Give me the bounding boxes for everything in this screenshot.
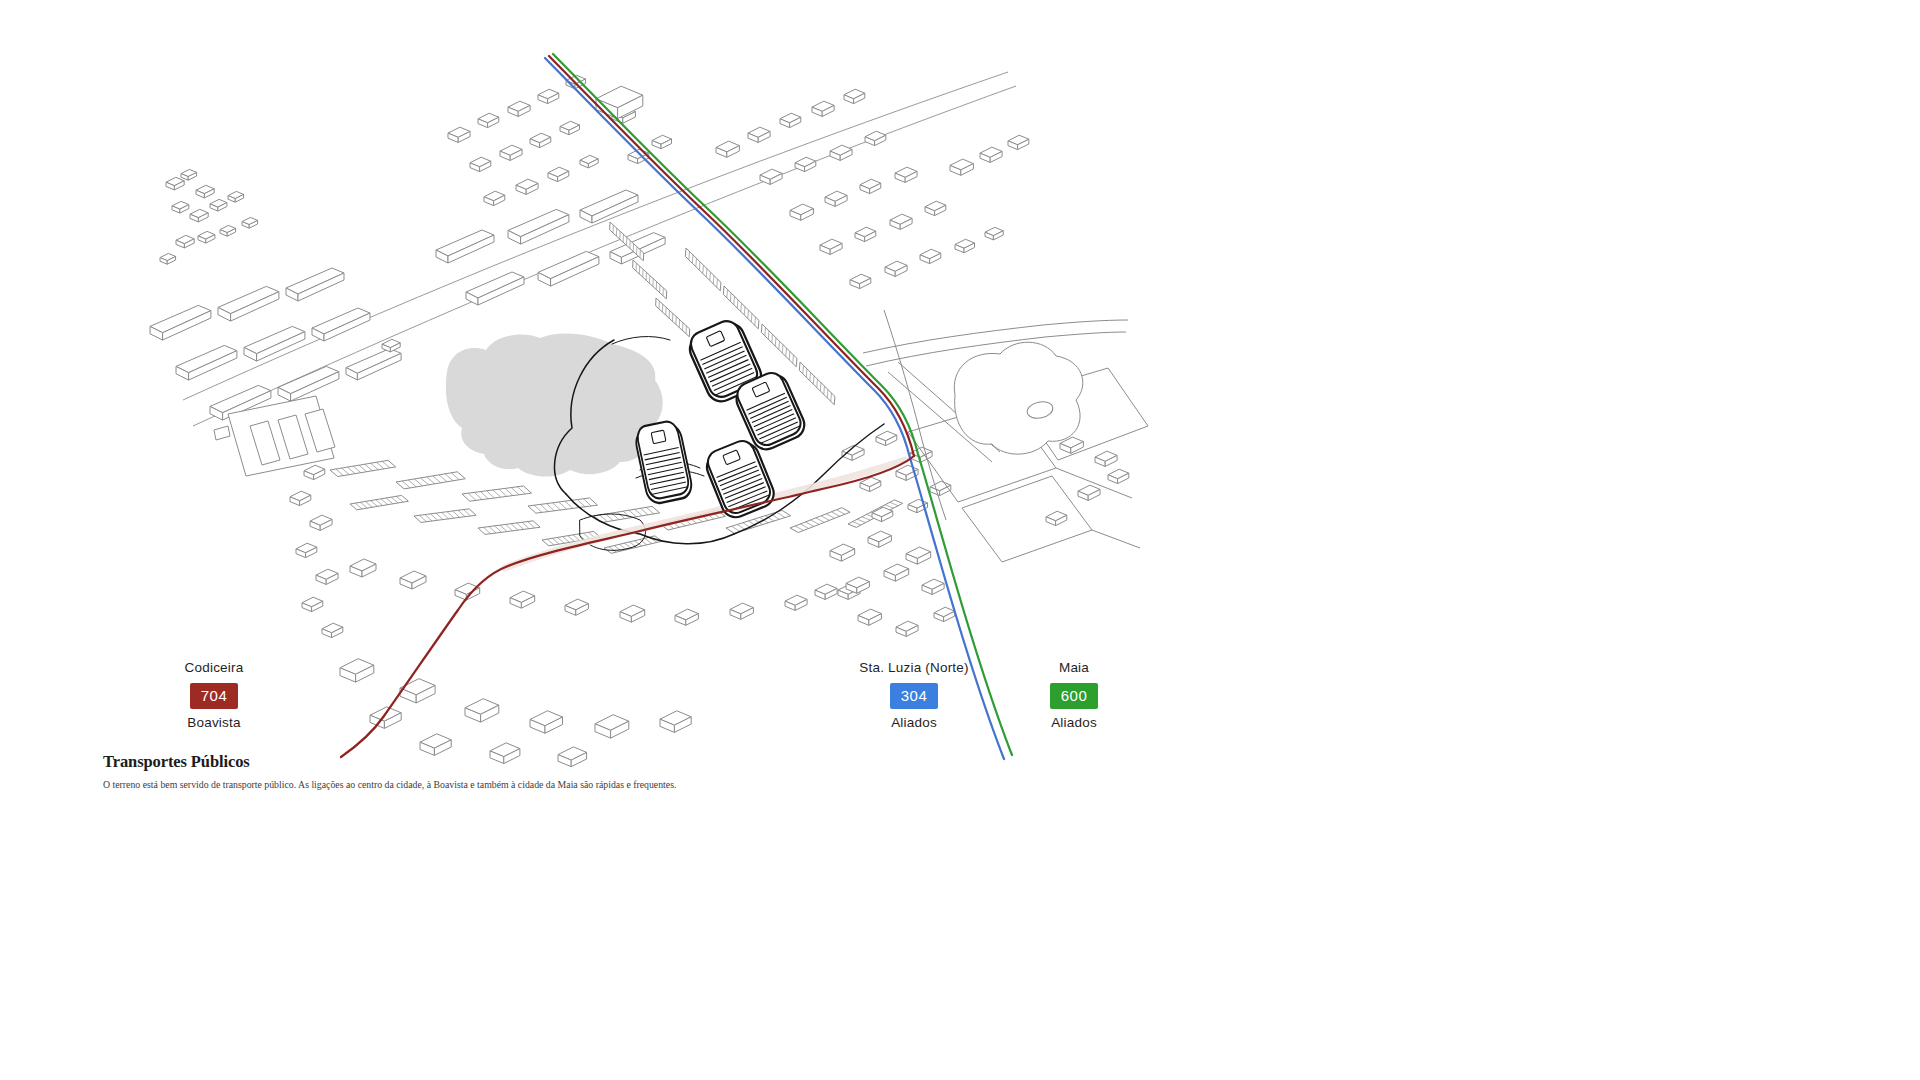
route-600-destination: Aliados	[999, 715, 1149, 731]
route-600-badge: 600	[1050, 683, 1098, 709]
route-704-badge: 704	[190, 683, 238, 709]
park	[863, 310, 1148, 562]
map-drawing	[0, 0, 1920, 1080]
route-legend-600: Maia 600 Aliados	[999, 660, 1149, 731]
route-704-origin: Codiceira	[139, 660, 289, 676]
housing-blocks-upper-left	[150, 169, 401, 420]
route-600-origin: Maia	[999, 660, 1149, 676]
housing-blocks-bottom	[340, 659, 691, 767]
route-legend-304: Sta. Luzia (Norte) 304 Aliados	[814, 660, 1014, 731]
transport-map-page: Codiceira 704 Boavista Sta. Luzia (Norte…	[0, 0, 1920, 1080]
route-304-origin: Sta. Luzia (Norte)	[814, 660, 1014, 676]
transit-routes	[341, 54, 1012, 759]
route-704-destination: Boavista	[139, 715, 289, 731]
route-304-badge: 304	[890, 683, 938, 709]
housing-blocks-upper-middle	[436, 75, 693, 344]
section-description: O terreno está bem servido de transporte…	[103, 779, 823, 791]
route-304-destination: Aliados	[814, 715, 1014, 731]
section-caption: Transportes Públicos O terreno está bem …	[103, 752, 823, 791]
park-garden	[954, 342, 1083, 454]
section-title: Transportes Públicos	[103, 752, 823, 772]
route-legend-704: Codiceira 704 Boavista	[139, 660, 289, 731]
pond	[446, 333, 663, 476]
tower-3	[633, 419, 694, 505]
